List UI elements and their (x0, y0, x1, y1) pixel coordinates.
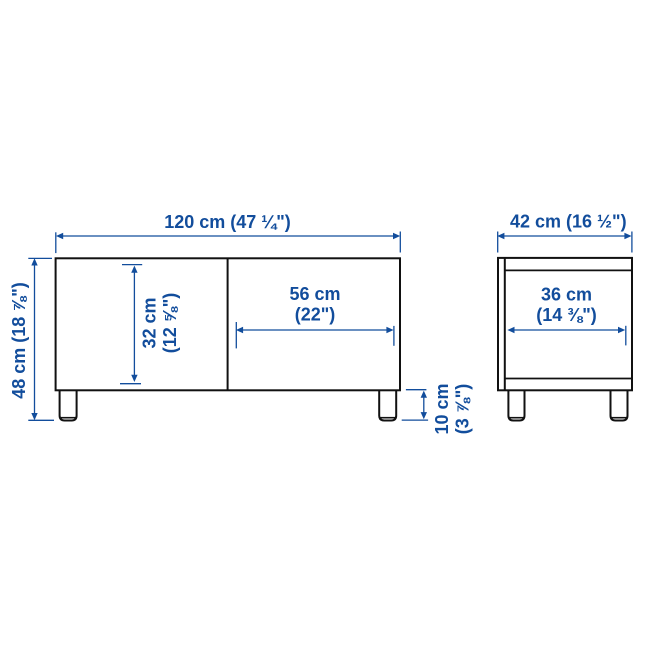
svg-text:(12 ⅝"): (12 ⅝") (160, 293, 180, 354)
svg-text:42 cm (16 ½"): 42 cm (16 ½") (510, 212, 627, 232)
svg-text:120 cm (47 ¼"): 120 cm (47 ¼") (164, 212, 291, 232)
svg-text:(22"): (22") (295, 305, 336, 325)
svg-text:32 cm: 32 cm (140, 297, 160, 348)
svg-text:(14 ⅜"): (14 ⅜") (536, 305, 597, 325)
svg-text:36 cm: 36 cm (541, 285, 592, 305)
svg-text:48 cm (18 ⅞"): 48 cm (18 ⅞") (9, 282, 29, 399)
svg-text:56 cm: 56 cm (289, 284, 340, 304)
svg-text:10 cm: 10 cm (432, 383, 452, 434)
svg-text:(3 ⅞"): (3 ⅞") (452, 384, 472, 435)
